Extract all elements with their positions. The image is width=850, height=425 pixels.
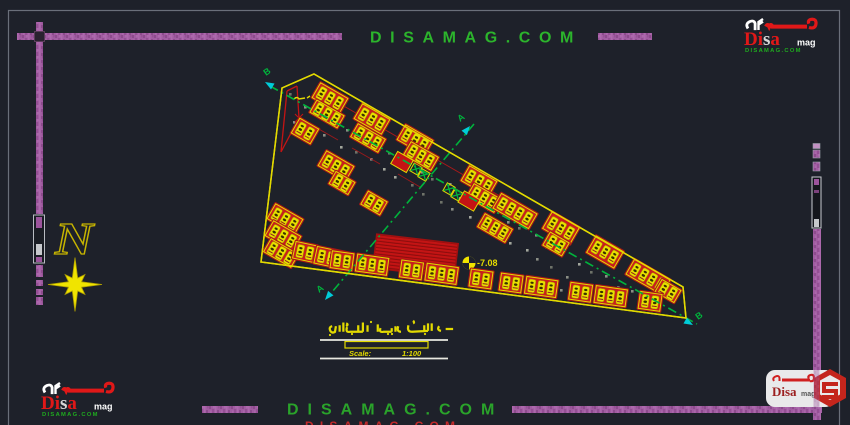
svg-text:Disa: Disa [772, 384, 797, 399]
svg-text:DISAMAG.COM: DISAMAG.COM [370, 30, 582, 47]
svg-text:mag: mag [94, 402, 113, 412]
svg-text:-7.08: -7.08 [477, 258, 498, 268]
svg-text:mag: mag [797, 38, 816, 48]
svg-text:DISAMAG.COM: DISAMAG.COM [42, 412, 99, 418]
svg-text:mag: mag [801, 391, 815, 398]
svg-text:DISAMAG.COM: DISAMAG.COM [287, 402, 503, 419]
svg-text:Scale:: Scale: [349, 349, 372, 358]
svg-text:1:100: 1:100 [402, 349, 422, 358]
svg-text:DISAMAG.COM: DISAMAG.COM [305, 419, 461, 425]
svg-text:DISAMAG.COM: DISAMAG.COM [745, 48, 802, 54]
svg-text:N: N [54, 213, 96, 264]
